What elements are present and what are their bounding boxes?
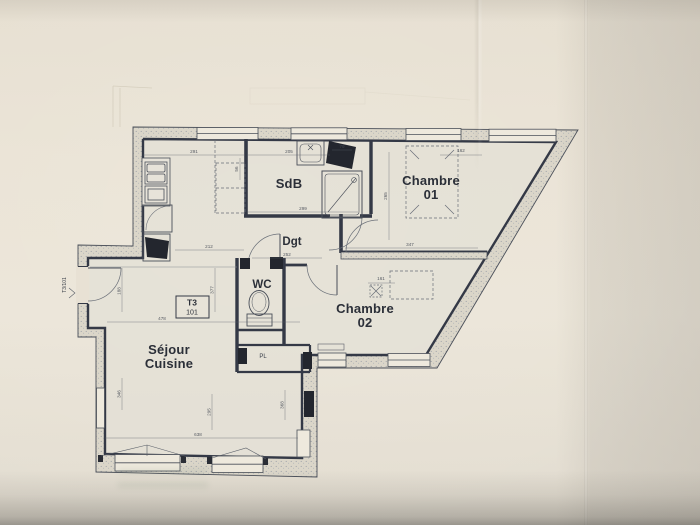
photo-shadow-top bbox=[0, 0, 700, 22]
entrance-unit-tag: T3/101 bbox=[62, 277, 68, 293]
label-wc: WC bbox=[252, 279, 271, 291]
label-sejour-line2: Cuisine bbox=[145, 356, 193, 371]
dim-162: 162 bbox=[457, 148, 465, 153]
dim-377: 377 bbox=[210, 286, 215, 294]
wall-duct bbox=[304, 391, 314, 417]
label-chambre1-line2: 01 bbox=[424, 187, 439, 202]
label-chambre1-line1: Chambre bbox=[402, 173, 460, 188]
unit-type: T3 bbox=[187, 298, 197, 308]
dim-188: 188 bbox=[117, 287, 122, 295]
label-chambre2-line2: 02 bbox=[358, 315, 373, 330]
unit-number: 101 bbox=[186, 310, 198, 317]
dim-638: 638 bbox=[194, 432, 202, 437]
label-chambre2-line1: Chambre bbox=[336, 301, 394, 316]
kitchen-counter bbox=[142, 158, 170, 206]
pl-jamb-left bbox=[238, 348, 247, 364]
paper-shadow-right bbox=[556, 0, 700, 525]
wc-door-jamb-left bbox=[240, 258, 250, 269]
dim-205: 205 bbox=[285, 149, 293, 154]
photo-of-floor-plan: T3 101 291 205 299 bbox=[0, 0, 700, 525]
pl-jamb-right bbox=[303, 352, 312, 369]
label-pl: PL bbox=[259, 354, 267, 360]
dim-265: 265 bbox=[383, 192, 388, 200]
dim-299: 299 bbox=[299, 206, 307, 211]
dim-212: 212 bbox=[205, 244, 213, 249]
dim-295: 295 bbox=[207, 408, 212, 416]
paper-crease-top bbox=[474, 0, 483, 170]
dim-252: 252 bbox=[283, 252, 291, 257]
dim-347: 347 bbox=[406, 242, 414, 247]
entrance-arrow bbox=[69, 288, 75, 298]
dim-79: 79 bbox=[339, 144, 345, 149]
faint-exterior-lines bbox=[113, 86, 470, 127]
wc-door-jamb-right bbox=[270, 257, 283, 269]
unit-label-box: T3 101 bbox=[176, 296, 209, 318]
label-dgt: Dgt bbox=[282, 236, 301, 248]
paper-crease-right bbox=[584, 0, 588, 525]
dim-291: 291 bbox=[190, 149, 198, 154]
photo-shadow-bottom bbox=[0, 470, 700, 525]
dim-346: 346 bbox=[117, 390, 122, 398]
label-sdb: SdB bbox=[276, 176, 303, 191]
dim-161: 161 bbox=[377, 276, 385, 281]
label-sejour-line1: Séjour bbox=[148, 342, 190, 357]
dim-478: 478 bbox=[158, 316, 166, 321]
dim-56: 56 bbox=[234, 166, 239, 172]
dim-368: 368 bbox=[280, 401, 285, 409]
